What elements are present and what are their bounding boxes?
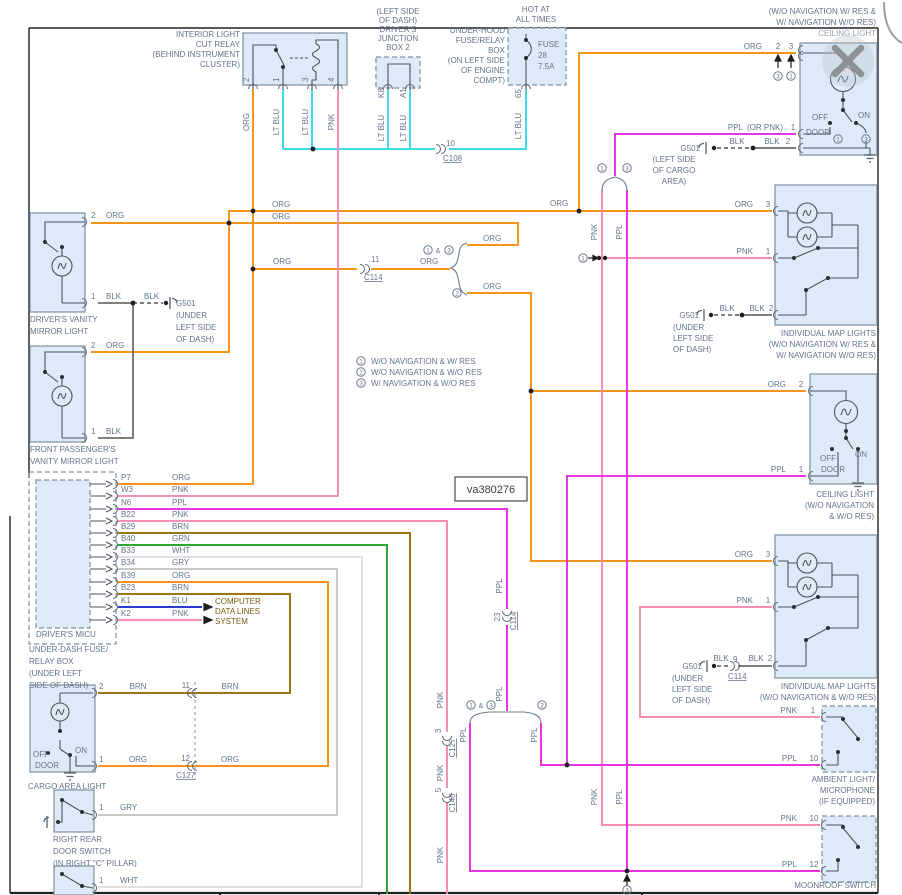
fuse-label: FUSE	[538, 40, 559, 49]
legend-2: W/O NAVIGATION & W/O RES	[371, 368, 482, 377]
label-63: 3	[766, 200, 771, 209]
label-119: B40	[121, 534, 136, 543]
relay-title: INTERIOR LIGHT	[176, 30, 240, 39]
underhood-fuse-relay-box	[508, 28, 566, 85]
label-124: K1	[121, 596, 131, 605]
label-4: 2	[242, 77, 251, 82]
label-11: PNK	[327, 113, 336, 130]
label-111: BLK	[106, 427, 122, 436]
label-172: PNK	[781, 706, 798, 715]
label-46: 1	[791, 123, 796, 132]
label-194: ON	[75, 746, 87, 755]
label-45: (OR PNK)	[747, 123, 783, 132]
label-165: 2	[768, 654, 773, 663]
label-68: 1	[426, 247, 430, 254]
label-18: A1	[399, 88, 408, 98]
label-81: G501	[679, 311, 699, 320]
label-215: 23	[493, 612, 502, 621]
label-152: ON	[855, 450, 867, 459]
label-65: ORG	[420, 257, 438, 266]
label-223: 3	[625, 887, 629, 894]
label-93: 2	[359, 369, 363, 376]
label-205: 3	[434, 728, 443, 733]
label-64: ORG	[273, 257, 291, 266]
label-101: BLK	[144, 292, 160, 301]
label-48: BLK	[764, 137, 780, 146]
underhood-box-label: UNDER-HOOD	[450, 26, 505, 35]
label-15: JUNCTION	[378, 34, 419, 43]
label-75: 3	[625, 165, 629, 172]
label-71: ORG	[483, 234, 501, 243]
ceiling1-variant: (W/O NAVIGATION W/ RES &	[769, 7, 877, 16]
label-73: ORG	[483, 282, 501, 291]
close-icon[interactable]	[822, 35, 874, 87]
label-51: (LEFT SIDE	[653, 155, 696, 164]
label-175: 10	[810, 754, 819, 763]
label-7: 4	[327, 77, 336, 82]
label-200: DOOR SWITCH	[53, 847, 111, 856]
label-67: C114	[364, 273, 383, 282]
label-140: RELAY BOX	[29, 657, 74, 666]
label-82: BLK	[719, 304, 735, 313]
label-127: PNK	[172, 485, 189, 494]
micu-inner-box	[36, 480, 90, 628]
label-145: SYSTEM	[215, 617, 248, 626]
label-203: WHT	[120, 876, 138, 885]
label-216: C114	[509, 611, 518, 630]
label-115: W3	[121, 485, 134, 494]
label-122: B39	[121, 571, 136, 580]
label-163: 9	[733, 655, 738, 664]
label-14: DRIVER'S	[379, 25, 416, 34]
label-69: &	[436, 248, 441, 255]
label-126: ORG	[172, 473, 190, 482]
label-22: C108	[443, 154, 463, 163]
label-191: C127	[176, 771, 196, 780]
label-133: GRY	[172, 558, 190, 567]
label-211: PPL	[459, 727, 468, 743]
label-221: 3	[489, 702, 493, 709]
hot-at-all-times: HOT AT	[522, 5, 550, 14]
label-107: MIRROR LIGHT	[30, 327, 88, 336]
label-90: W/ NAVIGATION W/O RES)	[776, 351, 876, 360]
interior-light-cut-relay-box	[243, 33, 347, 85]
label-148: 2	[799, 380, 804, 389]
label-32: 28	[538, 51, 547, 60]
label-47: BLK	[729, 137, 745, 146]
label-179: PNK	[781, 814, 798, 823]
label-118: B29	[121, 522, 136, 531]
vanity2-title: FRONT PASSENGER'S	[30, 445, 116, 454]
label-110: 1	[91, 427, 96, 436]
label-80: 1	[766, 247, 771, 256]
rr-switch-title: RIGHT REAR	[53, 835, 102, 844]
label-181: PPL	[782, 860, 798, 869]
label-76: PNK	[590, 223, 599, 240]
label-217: PNK	[590, 788, 599, 805]
label-173: 1	[811, 706, 816, 715]
label-130: BRN	[172, 522, 189, 531]
label-162: BLK	[713, 654, 729, 663]
label-40: 2	[776, 42, 781, 51]
label-134: ORG	[172, 571, 190, 580]
label-62: ORG	[735, 200, 753, 209]
label-202: 1	[99, 876, 104, 885]
label-100: BLK	[106, 292, 122, 301]
label-182: 12	[810, 860, 819, 869]
map1-title: INDIVIDUAL MAP LIGHTS	[781, 329, 876, 338]
label-84: 2	[769, 304, 774, 313]
label-156: & W/O RES)	[829, 512, 874, 521]
label-188: 1	[99, 755, 104, 764]
label-116: N6	[121, 498, 132, 507]
label-13: OF DASH)	[379, 16, 418, 25]
label-210: PNK	[436, 846, 445, 863]
label-135: BRN	[172, 583, 189, 592]
label-180: 10	[810, 814, 819, 823]
ambient-light-box	[822, 706, 876, 772]
label-169: OF DASH)	[672, 696, 711, 705]
label-77: PPL	[615, 224, 624, 240]
label-33: 7.5A	[538, 62, 555, 71]
label-219: 1	[469, 702, 473, 709]
label-86: LEFT SIDE	[673, 334, 713, 343]
label-222: 2	[540, 702, 544, 709]
individual-map-lights1-box	[775, 185, 877, 325]
moonroof-switch-box	[822, 816, 876, 882]
label-166: C114	[728, 672, 747, 681]
label-83: BLK	[749, 304, 765, 313]
label-89: (W/O NAVIGATION W/ RES &	[769, 340, 877, 349]
label-189: ORG	[129, 755, 147, 764]
label-54: OFF	[812, 113, 828, 122]
label-192: ORG	[221, 755, 239, 764]
label-137: PNK	[172, 609, 189, 618]
label-35: LT BLU	[514, 113, 523, 140]
label-6: 3	[301, 77, 310, 82]
label-27: BOX	[488, 46, 506, 55]
label-150: 1	[799, 465, 804, 474]
legend-1: W/O NAVIGATION & W/ RES	[371, 357, 476, 366]
label-186: 11	[182, 681, 191, 690]
label-87: OF DASH)	[673, 345, 712, 354]
label-161: G501	[682, 662, 702, 671]
label-209: C146	[448, 793, 457, 813]
label-132: WHT	[172, 546, 190, 555]
label-147: ORG	[768, 380, 786, 389]
label-61: ORG	[550, 199, 568, 208]
label-128: PPL	[172, 498, 188, 507]
label-178: (IF EQUIPPED)	[819, 797, 875, 806]
label-151: OFF	[820, 454, 836, 463]
label-123: B23	[121, 583, 136, 592]
label-98: ORG	[106, 211, 124, 220]
label-168: LEFT SIDE	[672, 685, 712, 694]
label-105: OF DASH)	[176, 335, 215, 344]
label-185: BRN	[130, 682, 147, 691]
label-218: PPL	[615, 789, 624, 805]
label-42: 3	[776, 73, 780, 80]
label-109: ORG	[106, 341, 124, 350]
label-8: ORG	[242, 113, 251, 131]
label-29: OF ENGINE	[461, 66, 505, 75]
label-5: 1	[272, 77, 281, 82]
label-16: BOX 2	[386, 43, 410, 52]
label-44: PPL	[728, 123, 744, 132]
label-153: DOOR	[821, 465, 845, 474]
label-164: BLK	[748, 654, 764, 663]
wiring-diagram-canvas: INTERIOR LIGHTCUT RELAY(BEHIND INSTRUMEN…	[0, 0, 902, 895]
label-95: 3	[359, 380, 363, 387]
label-193: OFF	[33, 750, 49, 759]
label-204: PNK	[436, 691, 445, 708]
label-3: CLUSTER)	[200, 60, 240, 69]
label-125: K2	[121, 609, 131, 618]
label-149: PPL	[771, 465, 787, 474]
label-79: PNK	[737, 247, 754, 256]
label-2: (BEHIND INSTRUMENT	[152, 50, 240, 59]
label-214: PPL	[495, 686, 504, 702]
label-58: 3	[864, 136, 868, 143]
drivers-vanity-box	[30, 213, 85, 312]
label-91: 1	[359, 358, 363, 365]
label-121: B34	[121, 558, 136, 567]
label-19: LT BLU	[377, 115, 386, 142]
label-52: OF CARGO	[653, 166, 696, 175]
label-39: ORG	[744, 42, 762, 51]
label-74: 1	[600, 165, 604, 172]
label-55: ON	[858, 111, 870, 120]
label-10: LT BLU	[301, 109, 310, 136]
vanity1-title: DRIVER'S VANITY	[30, 315, 98, 324]
label-177: MICROPHONE	[820, 786, 875, 795]
ceiling2-title: CEILING LIGHT	[816, 490, 874, 499]
cargo-title: CARGO AREA LIGHT	[28, 782, 106, 791]
label-187: BRN	[222, 682, 239, 691]
label-213: PPL	[495, 578, 504, 594]
label-207: PNK	[436, 764, 445, 781]
label-142: SIDE OF DASH)	[29, 681, 88, 690]
label-37: W/ NAVIGATION W/O RES)	[776, 18, 876, 27]
junction-box-label: (LEFT SIDE	[377, 7, 420, 16]
ambient-title: AMBIENT LIGHT/	[812, 775, 876, 784]
label-113: VANITY MIRROR LIGHT	[30, 457, 119, 466]
label-131: GRN	[172, 534, 190, 543]
label-60: ORG	[272, 212, 290, 221]
label-157: ORG	[735, 550, 753, 559]
label-190: 12	[181, 754, 190, 763]
moonroof-title: MOONROOF SWITCH	[794, 881, 876, 890]
label-30: COMPT)	[473, 76, 505, 85]
label-201: (IN RIGHT "C" PILLAR)	[53, 859, 137, 868]
label-104: LEFT SIDE	[176, 323, 216, 332]
label-160: 1	[766, 596, 771, 605]
label-129: PNK	[172, 510, 189, 519]
drivers-junction-box2	[376, 57, 420, 88]
label-136: BLU	[172, 596, 188, 605]
passenger-vanity-box	[30, 346, 85, 442]
label-184: 2	[99, 682, 104, 691]
label-167: (UNDER	[672, 674, 703, 683]
label-212: PPL	[530, 727, 539, 743]
wiring-diagram-viewer: INTERIOR LIGHTCUT RELAY(BEHIND INSTRUMEN…	[0, 0, 902, 895]
diagram-id: va380276	[467, 484, 515, 496]
label-41: 3	[789, 42, 794, 51]
label-120: B33	[121, 546, 136, 555]
label-21: 10	[446, 139, 455, 148]
label-78: 1	[581, 255, 585, 262]
label-108: 2	[91, 341, 96, 350]
label-57: 1	[836, 136, 840, 143]
label-24: ALL TIMES	[516, 15, 556, 24]
label-208: 5	[434, 787, 443, 792]
legend-3: W/ NAVIGATION & W/O RES	[371, 379, 476, 388]
map2-title: INDIVIDUAL MAP LIGHTS	[781, 682, 876, 691]
label-158: 3	[766, 550, 771, 559]
left-rear-door-switch-box	[54, 866, 94, 895]
label-20: LT BLU	[399, 115, 408, 142]
right-rear-door-switch-box	[54, 790, 94, 832]
label-72: 2	[455, 290, 459, 297]
label-155: (W/O NAVIGATION	[805, 501, 874, 510]
label-174: PPL	[782, 754, 798, 763]
label-103: (UNDER	[176, 311, 207, 320]
label-53: AREA)	[662, 177, 687, 186]
label-43: 1	[789, 73, 793, 80]
label-195: DOOR	[35, 761, 59, 770]
label-159: PNK	[737, 596, 754, 605]
micu-title: DRIVER'S MICU	[36, 630, 96, 639]
label-206: C127	[448, 738, 457, 758]
label-85: (UNDER	[673, 323, 704, 332]
label-141: (UNDER LEFT	[29, 669, 82, 678]
label-97: 2	[91, 211, 96, 220]
label-17: K8	[377, 88, 386, 98]
label-28: (ON LEFT SIDE	[448, 56, 505, 65]
label-50: G501	[680, 144, 700, 153]
label-114: P7	[121, 473, 131, 482]
label-198: GRY	[120, 803, 138, 812]
label-171: (W/O NAVIGATION & W/O RES)	[760, 693, 876, 702]
computer-note: COMPUTER	[215, 597, 261, 606]
label-66: 11	[371, 255, 380, 264]
label-102: G501	[176, 299, 196, 308]
label-59: ORG	[272, 200, 290, 209]
label-197: 1	[99, 803, 104, 812]
underdash-label: UNDER-DASH FUSE/	[29, 645, 109, 654]
label-26: FUSE/RELAY	[456, 36, 506, 45]
label-1: CUT RELAY	[196, 40, 241, 49]
label-9: LT BLU	[272, 109, 281, 136]
label-117: B22	[121, 510, 136, 519]
label-34: 65	[514, 89, 523, 98]
label-49: 2	[786, 137, 791, 146]
label-99: 1	[91, 292, 96, 301]
label-56: DOOR	[806, 128, 830, 137]
label-220: &	[479, 703, 484, 710]
label-144: DATA LINES	[215, 607, 260, 616]
label-70: 3	[447, 247, 451, 254]
right-gutter	[880, 0, 902, 895]
